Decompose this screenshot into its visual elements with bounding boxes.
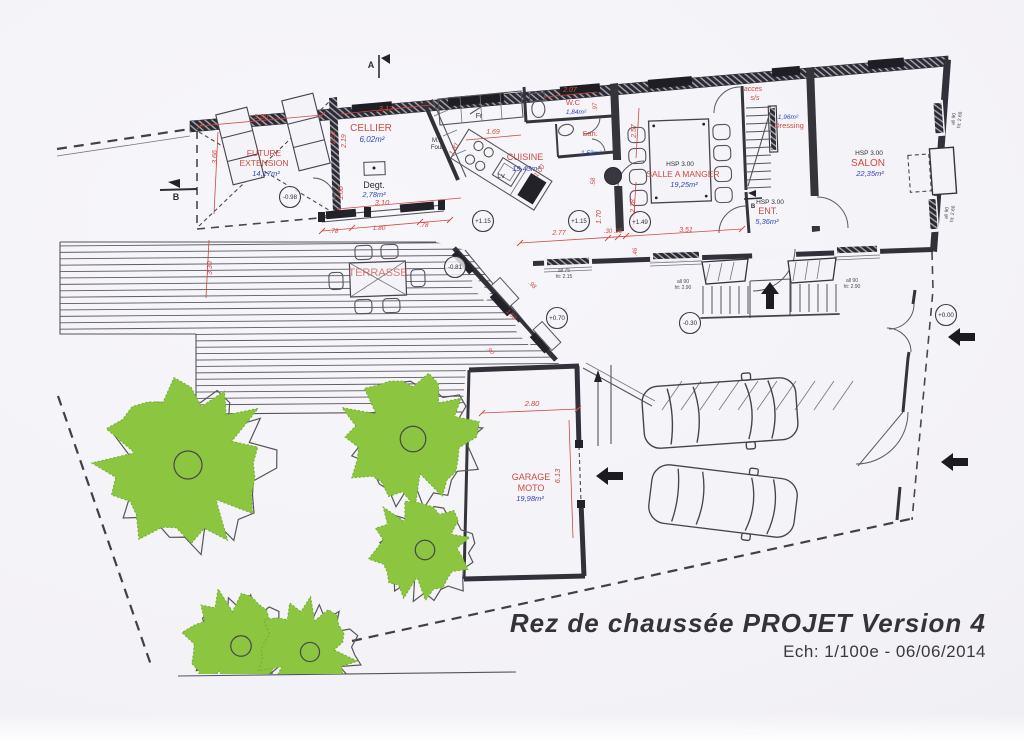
plan-label: 3.10 xyxy=(375,198,390,207)
plan-label: 2.52 xyxy=(330,130,337,145)
level-value: +0.70 xyxy=(549,315,565,322)
plan-label: acces xyxy=(744,86,763,93)
room-terrasse: TERRASSE xyxy=(348,267,407,279)
level-marker: +1.49 xyxy=(630,212,651,233)
planter xyxy=(788,258,836,283)
hsp-salle-a-manger: HSP 3.00 xyxy=(666,161,694,168)
plan-label: .58 xyxy=(591,177,597,186)
terrace-table xyxy=(328,243,426,314)
room-salle-a-manger: SALLE A MANGER xyxy=(646,169,719,179)
chimney xyxy=(907,147,956,196)
room-future-extension: EXTENSION xyxy=(239,158,288,168)
car-sedan xyxy=(646,456,800,545)
ramp-hatch xyxy=(700,381,720,410)
level-value: +1.49 xyxy=(632,219,648,226)
deck-board xyxy=(58,350,662,355)
tree xyxy=(342,373,483,508)
level-marker: -0.98 xyxy=(280,187,301,208)
stair-tread xyxy=(746,163,771,164)
level-value: -0.81 xyxy=(448,264,463,271)
stove-burner xyxy=(474,160,487,173)
front-door-arrow xyxy=(761,282,779,309)
area-entree: 5,36m² xyxy=(755,217,779,226)
level-marker: -0.81 xyxy=(445,257,466,278)
trees-group xyxy=(92,373,483,704)
courtyard xyxy=(583,363,853,446)
degt-door-swing xyxy=(313,178,335,200)
area-cellier: 6,02m² xyxy=(360,135,385,144)
plan-label: .78 xyxy=(419,222,428,229)
front-door-opening xyxy=(752,246,796,259)
chair xyxy=(715,187,733,203)
section-flag-a xyxy=(381,54,390,64)
room-dressing: Dressing xyxy=(774,121,804,130)
deck-board xyxy=(58,337,662,342)
area-garage-moto: 19,98m² xyxy=(516,494,544,503)
plan-label: Fr xyxy=(476,113,483,120)
oven xyxy=(517,173,546,205)
extension-panel xyxy=(282,93,330,171)
chair xyxy=(381,244,398,259)
deck-board xyxy=(58,382,662,387)
plan-label: .25 xyxy=(614,229,623,235)
level-value: +1.15 xyxy=(571,218,587,225)
gate-leaf xyxy=(889,304,914,329)
south-window-salon xyxy=(834,243,880,256)
plan-label: .90 xyxy=(485,346,496,357)
plan-label: ht: 2.66 xyxy=(949,205,957,222)
dim-tick xyxy=(605,235,611,241)
plan-label: 1.00 xyxy=(338,186,345,200)
room-wc: W.C xyxy=(566,98,581,107)
room-sanitaires: San. xyxy=(582,129,597,138)
deck-board xyxy=(58,356,662,361)
chair xyxy=(629,169,647,185)
plan-label: 1.70 xyxy=(596,210,603,224)
plan-label: .78 xyxy=(329,228,338,235)
side-mirror xyxy=(741,373,750,381)
area-wc: 1,84m² xyxy=(566,109,587,116)
plan-label: ht: 2.90 xyxy=(844,284,861,290)
tree xyxy=(369,501,475,601)
deck-board xyxy=(58,305,662,310)
ramp-hatch xyxy=(719,381,739,410)
area-sanitaires: 1,52m² xyxy=(581,150,602,157)
ramp-hatch xyxy=(814,381,834,410)
plan-label: 2.28 xyxy=(630,199,637,214)
plan-label: 3.17 xyxy=(379,104,394,113)
plan-label: ht: 2.15 xyxy=(556,274,573,280)
south-window-kitchen xyxy=(544,255,592,268)
washbasin xyxy=(557,123,574,138)
side-mirror xyxy=(746,442,755,450)
plan-label: 3.30 xyxy=(207,261,214,275)
plan-label: .46 xyxy=(633,247,639,256)
deck-board xyxy=(58,369,662,374)
entrance-arrow-lower xyxy=(941,453,968,471)
plan-label: 2.77 xyxy=(551,230,567,237)
plan-label: 2.07 xyxy=(562,87,578,94)
plan-label: 1.69 xyxy=(486,129,500,136)
scanned-plan-sheet: -0.98-0.81+1.15+1.15+1.49+0.70-0.30+0.00… xyxy=(0,0,1024,739)
deck-board xyxy=(58,331,662,336)
stair-wall xyxy=(742,86,746,190)
garage-arrow xyxy=(596,467,623,485)
gate-leaf xyxy=(887,328,911,352)
level-value: -0.30 xyxy=(683,320,698,327)
gate-leaf xyxy=(856,412,908,464)
stove-burner xyxy=(472,140,485,153)
side-mirror xyxy=(749,468,758,476)
plan-label: B xyxy=(173,192,180,202)
chair xyxy=(329,272,344,289)
room-future-extension: FUTURE xyxy=(247,148,282,158)
plan-label: 3.66 xyxy=(212,150,219,164)
kitchen-dining-wall xyxy=(610,83,624,232)
planter xyxy=(702,259,748,284)
plan-label: Lv xyxy=(497,173,505,180)
south-window-dining xyxy=(650,249,702,262)
chair xyxy=(411,269,426,286)
stair-tread xyxy=(746,115,771,116)
salon-door-swing xyxy=(817,197,848,228)
level-marker: +1.15 xyxy=(473,211,494,232)
stair-tread xyxy=(746,139,771,140)
section-flag-b xyxy=(168,179,180,188)
deck-board xyxy=(58,395,662,400)
deck-board xyxy=(58,247,662,252)
room-entree: ENT. xyxy=(758,206,778,216)
tree-canopy xyxy=(259,597,358,700)
chair xyxy=(713,145,731,161)
garage-door-opening xyxy=(579,446,581,502)
plan-label: A xyxy=(368,60,375,70)
level-value: -0.98 xyxy=(283,194,298,201)
tree-canopy xyxy=(369,501,470,600)
plan-scale-date: Ech: 1/100e - 06/06/2014 xyxy=(510,642,986,662)
plan-label: 3.80 xyxy=(254,112,269,121)
deck-board xyxy=(58,324,662,329)
plan-label: 3.51 xyxy=(679,227,693,234)
level-value: +1.15 xyxy=(475,218,491,225)
room-salon: SALON xyxy=(851,158,885,169)
deck-board xyxy=(58,343,662,348)
plan-label: 2.80 xyxy=(524,399,540,408)
water-heater xyxy=(605,168,622,185)
plan-label: B xyxy=(751,204,756,210)
stair-tread xyxy=(746,171,771,172)
plan-label: 2.19 xyxy=(341,134,348,149)
ramp-hatch xyxy=(833,381,853,410)
hsp-entree: HSP 3.00 xyxy=(756,199,784,206)
stair-tread xyxy=(746,187,771,188)
stove-burner xyxy=(482,146,495,159)
plan-label: .30 xyxy=(604,229,613,235)
area-salle-a-manger: 19,25m² xyxy=(670,180,698,189)
stair-tread xyxy=(746,131,771,132)
plan-label: 2.57 xyxy=(631,123,638,139)
section-flag-b2 xyxy=(748,190,756,197)
plan-label: ht: 2.90 xyxy=(675,285,692,291)
plan-label: Four xyxy=(431,145,443,151)
room-garage-moto: GARAGE xyxy=(512,472,551,482)
cars xyxy=(641,370,800,546)
stair-tread xyxy=(746,147,771,148)
plan-label: .97 xyxy=(593,102,599,111)
stove-burner xyxy=(464,153,477,166)
basement-door-swing xyxy=(714,87,740,113)
area-dressing: 1,96m² xyxy=(778,114,799,121)
tree-canopy xyxy=(342,373,479,506)
hsp-salon: HSP 3.00 xyxy=(855,150,883,157)
level-marker: -0.30 xyxy=(680,313,701,334)
plan-title: Rez de chaussée PROJET Version 4 xyxy=(510,608,986,639)
garden-wall-gates xyxy=(856,290,915,520)
area-salon: 22,35m² xyxy=(855,169,884,178)
ramp-hatch xyxy=(795,381,815,410)
plan-label: s/s xyxy=(751,95,760,102)
cellier-appliance xyxy=(364,162,385,176)
deck-board xyxy=(58,318,662,323)
stair-tread xyxy=(746,107,771,108)
level-marker: +0.70 xyxy=(547,308,568,329)
area-future-extension: 14,17m² xyxy=(252,169,280,178)
level-value: +0.00 xyxy=(938,312,954,319)
room-degagement: Degt. xyxy=(363,180,385,190)
deck-board xyxy=(58,375,662,380)
chair xyxy=(355,245,372,260)
plan-label: 1.80 xyxy=(373,225,386,232)
plan-label: .98 xyxy=(527,280,538,291)
entrance-arrow-upper xyxy=(948,328,975,346)
plan-label: 6.13 xyxy=(553,468,562,483)
title-block: Rez de chaussée PROJET Version 4 Ech: 1/… xyxy=(510,608,986,662)
room-cuisine: CUISINE xyxy=(507,152,544,162)
level-marker: +1.15 xyxy=(569,211,590,232)
deck-board xyxy=(58,388,662,393)
chair xyxy=(713,124,731,140)
plan-label: ht: 2.66 xyxy=(956,111,964,128)
level-marker: +0.00 xyxy=(936,305,957,326)
room-garage-moto: MOTO xyxy=(518,483,545,493)
circulation-arrowhead xyxy=(594,370,602,382)
stair-tread xyxy=(746,155,771,156)
room-cellier: CELLIER xyxy=(350,123,392,134)
side-mirror xyxy=(741,533,750,541)
ramp-hatch xyxy=(738,381,758,410)
plan-label: M.o xyxy=(432,138,443,144)
stairs-interior xyxy=(746,107,771,188)
tree xyxy=(259,597,361,705)
